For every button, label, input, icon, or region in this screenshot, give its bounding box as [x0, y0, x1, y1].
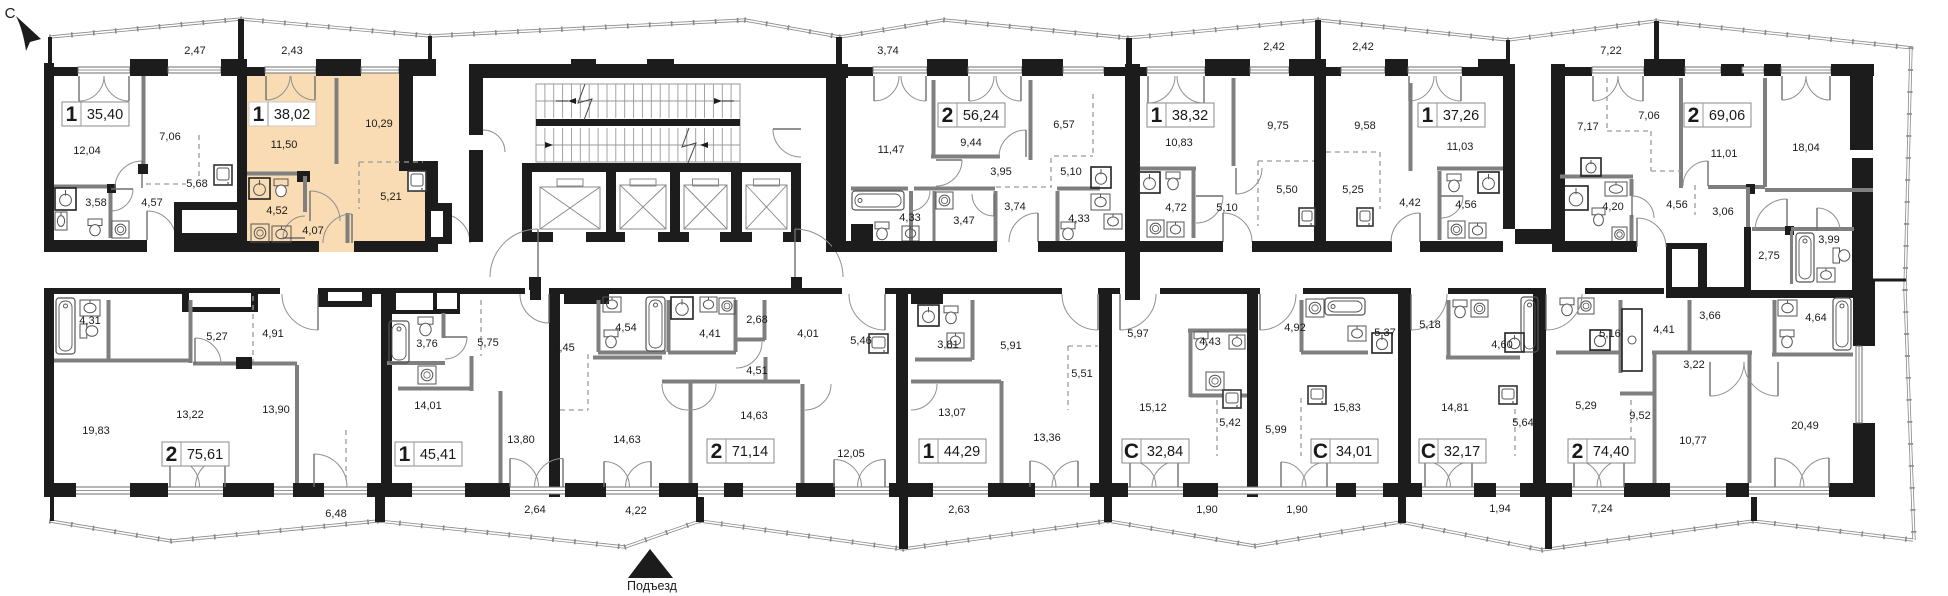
svg-text:4,92: 4,92	[1284, 322, 1305, 334]
svg-text:15,12: 15,12	[1139, 402, 1167, 414]
svg-text:5,51: 5,51	[1071, 368, 1092, 380]
svg-text:3,81: 3,81	[937, 339, 958, 351]
svg-text:7,17: 7,17	[1577, 121, 1598, 133]
svg-text:5,75: 5,75	[477, 337, 498, 349]
svg-text:3,74: 3,74	[877, 45, 898, 57]
svg-text:4,42: 4,42	[1399, 197, 1420, 209]
svg-text:44,29: 44,29	[944, 444, 980, 460]
svg-text:1: 1	[399, 443, 411, 466]
svg-text:74,40: 74,40	[1593, 444, 1629, 460]
svg-text:С: С	[1313, 440, 1328, 463]
svg-text:6,48: 6,48	[325, 508, 346, 520]
svg-text:9,52: 9,52	[1629, 410, 1650, 422]
svg-text:18,04: 18,04	[1792, 142, 1820, 154]
svg-text:11,50: 11,50	[271, 139, 298, 151]
svg-text:Подъезд: Подъезд	[627, 579, 678, 593]
svg-text:1: 1	[1422, 104, 1434, 127]
svg-text:5,18: 5,18	[1419, 319, 1440, 331]
svg-text:1: 1	[253, 103, 265, 126]
svg-text:3,47: 3,47	[953, 215, 974, 227]
svg-text:1,90: 1,90	[1196, 504, 1217, 516]
svg-text:5,45: 5,45	[553, 342, 574, 354]
svg-text:4,56: 4,56	[1666, 199, 1687, 211]
svg-text:14,63: 14,63	[740, 410, 768, 422]
svg-text:20,49: 20,49	[1791, 420, 1819, 432]
svg-text:4,31: 4,31	[79, 315, 100, 327]
svg-text:7,06: 7,06	[1638, 110, 1659, 122]
svg-text:71,14: 71,14	[732, 444, 768, 460]
svg-text:4,43: 4,43	[1199, 336, 1220, 348]
svg-text:13,90: 13,90	[262, 404, 290, 416]
svg-text:5,29: 5,29	[1575, 400, 1596, 412]
svg-text:5,10: 5,10	[1216, 202, 1237, 214]
svg-text:2,63: 2,63	[948, 504, 969, 516]
svg-text:7,22: 7,22	[1600, 45, 1621, 57]
svg-text:3,76: 3,76	[416, 338, 437, 350]
svg-text:2: 2	[942, 104, 954, 127]
svg-text:3,99: 3,99	[1818, 234, 1839, 246]
svg-text:4,41: 4,41	[699, 328, 720, 340]
svg-text:14,63: 14,63	[613, 434, 641, 446]
svg-text:35,40: 35,40	[87, 107, 123, 123]
svg-text:3,22: 3,22	[1683, 359, 1704, 371]
svg-text:38,02: 38,02	[274, 107, 310, 123]
svg-text:3,66: 3,66	[1699, 310, 1720, 322]
svg-text:5,25: 5,25	[1342, 184, 1363, 196]
svg-text:11,47: 11,47	[878, 144, 905, 156]
svg-text:75,61: 75,61	[187, 447, 223, 463]
svg-text:4,64: 4,64	[1805, 312, 1826, 324]
svg-text:2: 2	[1572, 440, 1584, 463]
svg-text:2,42: 2,42	[1263, 41, 1284, 53]
svg-text:12,05: 12,05	[837, 448, 865, 460]
svg-text:2,64: 2,64	[524, 504, 545, 516]
svg-text:5,97: 5,97	[1127, 328, 1148, 340]
svg-text:14,01: 14,01	[414, 400, 442, 412]
svg-text:10,83: 10,83	[1165, 137, 1193, 149]
svg-text:4,22: 4,22	[625, 505, 646, 517]
svg-text:С: С	[1124, 440, 1139, 463]
svg-text:37,26: 37,26	[1443, 108, 1479, 124]
svg-text:С: С	[5, 5, 16, 22]
svg-text:С: С	[1421, 440, 1436, 463]
svg-text:7,06: 7,06	[159, 131, 180, 143]
svg-text:38,32: 38,32	[1172, 108, 1208, 124]
svg-text:32,84: 32,84	[1147, 444, 1183, 460]
svg-text:13,36: 13,36	[1033, 432, 1061, 444]
svg-text:10,29: 10,29	[365, 118, 393, 130]
svg-text:5,64: 5,64	[1512, 417, 1533, 429]
svg-text:2,75: 2,75	[1758, 250, 1779, 262]
svg-text:2,42: 2,42	[1352, 41, 1373, 53]
svg-text:6,57: 6,57	[1053, 119, 1074, 131]
svg-text:1,90: 1,90	[1286, 504, 1307, 516]
svg-text:4,60: 4,60	[1491, 339, 1512, 351]
svg-text:3,95: 3,95	[990, 166, 1011, 178]
svg-text:11,03: 11,03	[1447, 141, 1474, 153]
svg-text:4,56: 4,56	[1455, 199, 1476, 211]
svg-text:4,33: 4,33	[1068, 213, 1089, 225]
svg-text:2: 2	[711, 440, 723, 463]
svg-text:2,43: 2,43	[281, 45, 302, 57]
svg-text:3,06: 3,06	[1712, 206, 1733, 218]
svg-text:45,41: 45,41	[420, 447, 456, 463]
svg-text:13,80: 13,80	[507, 434, 535, 446]
svg-text:2: 2	[1688, 104, 1700, 127]
svg-text:1: 1	[66, 103, 78, 126]
svg-text:13,07: 13,07	[938, 407, 966, 419]
svg-text:19,83: 19,83	[82, 425, 110, 437]
svg-text:4,57: 4,57	[141, 197, 162, 209]
svg-text:9,44: 9,44	[960, 137, 981, 149]
svg-text:5,27: 5,27	[206, 331, 227, 343]
svg-text:5,21: 5,21	[380, 191, 401, 203]
svg-text:12,04: 12,04	[73, 145, 101, 157]
svg-text:5,91: 5,91	[1000, 340, 1021, 352]
svg-text:4,01: 4,01	[797, 328, 818, 340]
svg-text:32,17: 32,17	[1444, 444, 1480, 460]
svg-text:1,94: 1,94	[1489, 503, 1510, 515]
svg-text:15,83: 15,83	[1333, 402, 1361, 414]
svg-text:56,24: 56,24	[963, 108, 999, 124]
svg-text:13,22: 13,22	[176, 409, 204, 421]
svg-text:1: 1	[923, 440, 935, 463]
svg-text:4,54: 4,54	[615, 322, 636, 334]
svg-text:5,50: 5,50	[1276, 184, 1297, 196]
svg-text:1: 1	[1151, 104, 1163, 127]
svg-text:4,72: 4,72	[1165, 202, 1186, 214]
svg-text:3,58: 3,58	[85, 197, 106, 209]
svg-text:3,74: 3,74	[1004, 201, 1025, 213]
svg-text:4,33: 4,33	[899, 212, 920, 224]
svg-text:69,06: 69,06	[1709, 108, 1745, 124]
svg-text:2,68: 2,68	[746, 314, 767, 326]
svg-text:5,42: 5,42	[1219, 417, 1240, 429]
svg-text:5,16: 5,16	[1599, 328, 1620, 340]
svg-text:7,24: 7,24	[1591, 503, 1612, 515]
svg-text:10,77: 10,77	[1679, 435, 1707, 447]
svg-text:34,01: 34,01	[1336, 444, 1372, 460]
svg-text:4,51: 4,51	[746, 365, 767, 377]
svg-text:9,75: 9,75	[1267, 120, 1288, 132]
svg-text:2,47: 2,47	[184, 45, 205, 57]
svg-text:4,41: 4,41	[1653, 324, 1674, 336]
svg-text:5,10: 5,10	[1060, 166, 1081, 178]
svg-text:5,37: 5,37	[1374, 327, 1395, 339]
svg-text:5,68: 5,68	[186, 178, 207, 190]
svg-text:5,99: 5,99	[1265, 424, 1286, 436]
svg-text:2: 2	[166, 443, 178, 466]
svg-text:4,91: 4,91	[262, 328, 283, 340]
svg-text:4,07: 4,07	[302, 225, 323, 237]
svg-text:5,46: 5,46	[850, 335, 871, 347]
svg-text:11,01: 11,01	[1711, 148, 1738, 160]
svg-text:9,58: 9,58	[1354, 120, 1375, 132]
svg-text:14,81: 14,81	[1441, 402, 1469, 414]
svg-text:4,20: 4,20	[1602, 201, 1623, 213]
svg-text:4,52: 4,52	[266, 205, 287, 217]
